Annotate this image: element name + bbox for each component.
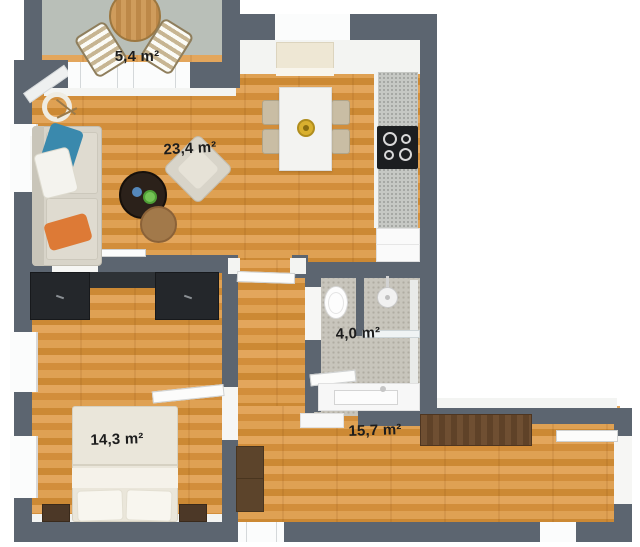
vanity-faucet <box>380 386 386 392</box>
right-wall-upper <box>420 14 437 412</box>
hallway-bottom-window <box>540 522 576 542</box>
bedroom-window-1 <box>10 332 38 392</box>
vanity-basin <box>334 390 398 405</box>
bathroom-area-label: 4,0 m² <box>319 325 397 343</box>
dining-chair <box>331 100 350 125</box>
bedroom-top-door-leaf <box>96 249 146 257</box>
side-table <box>140 206 177 243</box>
burner <box>384 150 394 160</box>
dining-chair <box>331 129 350 154</box>
bottom-wall-c <box>576 522 632 542</box>
bed-pillow <box>76 489 123 522</box>
burner <box>399 148 412 161</box>
hallway-top-face <box>437 398 617 408</box>
hallway-door-frame-line <box>246 522 247 542</box>
living-bedroom-wall-b <box>98 255 230 273</box>
sofa-backrest <box>32 126 44 266</box>
kitchen-base-unit <box>376 228 420 262</box>
hallway-bottom-door <box>238 522 284 542</box>
burner <box>383 132 397 146</box>
bedroom-window-2 <box>10 436 38 498</box>
corridor-door-leaf <box>237 271 295 284</box>
table-bowl-center <box>303 125 309 131</box>
corridor-door-post-right <box>290 258 306 274</box>
wardrobe-middle-band <box>90 272 155 288</box>
balcony-wall-right-seg <box>190 62 240 88</box>
floor-plan: 5,4 m² 23,4 m² 4,0 m² 14,3 m² 15,7 m² <box>0 0 640 547</box>
hallway-shoe-cabinet <box>236 446 264 512</box>
bed-fold-line <box>72 464 178 466</box>
burner <box>401 134 411 144</box>
entry-door-gap <box>614 436 632 504</box>
left-wall-seg-c <box>14 392 32 436</box>
kitchen-base-unit-line <box>376 244 420 245</box>
bottom-wall-a <box>14 522 238 542</box>
hallway-sideboard <box>420 414 532 446</box>
coffee-table-bowl-green <box>143 190 157 204</box>
hallway-area-label: 15,7 m² <box>335 422 415 440</box>
top-niche-window <box>275 14 350 40</box>
shower-head-center <box>385 295 390 300</box>
sideboard-top-front <box>276 68 334 76</box>
coffee-table-bowl-blue <box>132 187 142 197</box>
bathroom-right-face <box>410 280 418 400</box>
balcony-door-frame-line <box>80 62 81 88</box>
bed-pillow <box>125 489 172 522</box>
bottom-wall-b <box>284 522 540 542</box>
bedroom-right-wall-a <box>222 255 238 387</box>
balcony-door-frame-line <box>133 62 134 88</box>
nightstand-right <box>179 504 207 522</box>
hallway-shoe-cabinet-line <box>236 478 264 479</box>
bed-sheet <box>72 468 178 488</box>
entry-door-leaf <box>556 430 618 442</box>
bathroom-top-wall <box>305 262 437 278</box>
toilet-seat <box>328 292 344 314</box>
bedroom-area-label: 14,3 m² <box>78 431 156 449</box>
nightstand-left <box>42 504 70 522</box>
cooktop <box>377 126 418 169</box>
balcony-area-label: 5,4 m² <box>100 49 174 64</box>
hallway-door-frame-line <box>276 522 277 542</box>
top-wall-seg-a <box>237 14 275 40</box>
